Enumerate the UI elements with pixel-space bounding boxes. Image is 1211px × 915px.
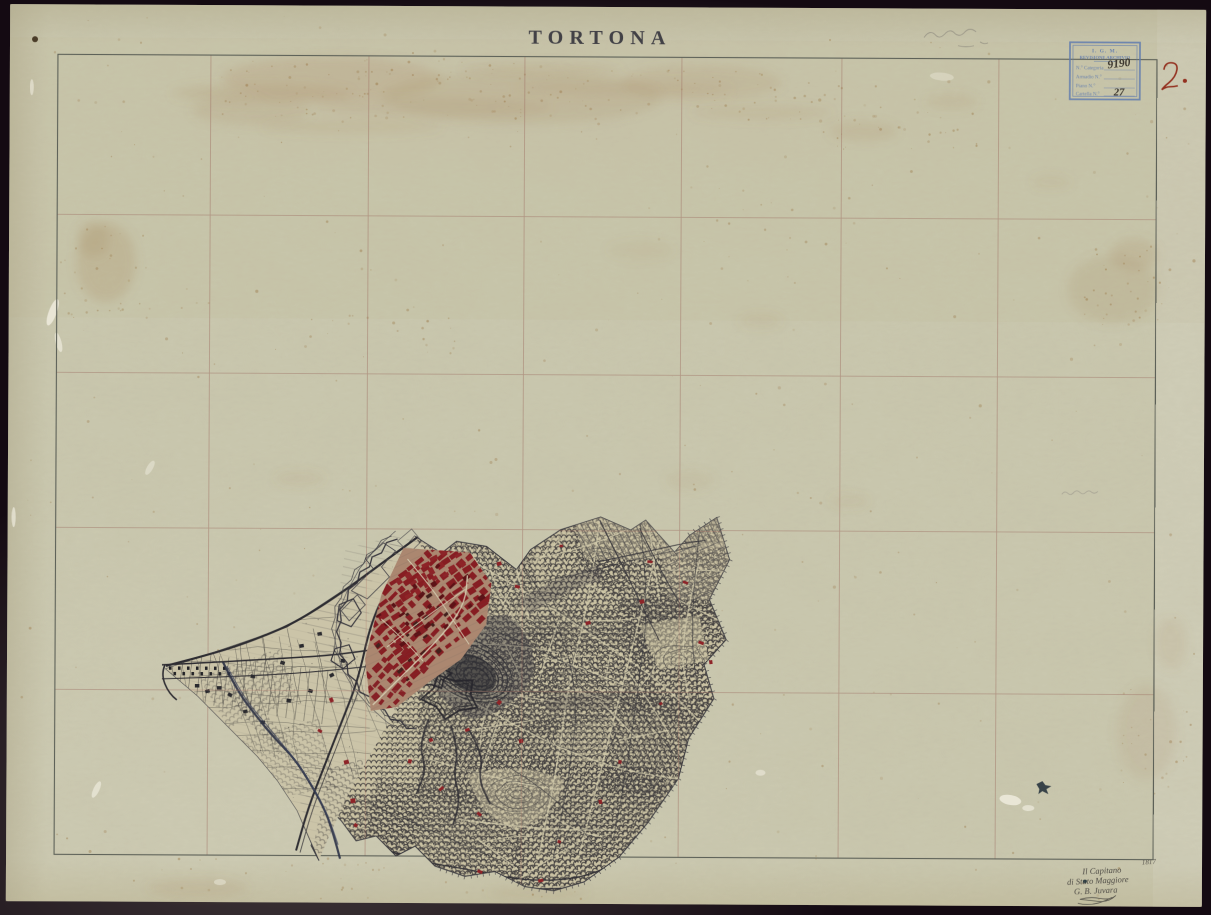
svg-text:Cartella N.°: Cartella N.°	[1076, 92, 1100, 97]
svg-text:G. B. Juvara: G. B. Juvara	[1074, 884, 1118, 896]
svg-text:Armadio N.°: Armadio N.°	[1076, 75, 1102, 80]
svg-text:Piano N.°: Piano N.°	[1076, 84, 1096, 89]
svg-text:I. G. M.: I. G. M.	[1092, 48, 1118, 54]
svg-text:1817: 1817	[1142, 858, 1157, 867]
svg-text:27: 27	[1113, 87, 1125, 98]
svg-text:TORTONA: TORTONA	[528, 27, 671, 50]
svg-text:N.° Categoria: N.° Categoria	[1076, 66, 1104, 71]
